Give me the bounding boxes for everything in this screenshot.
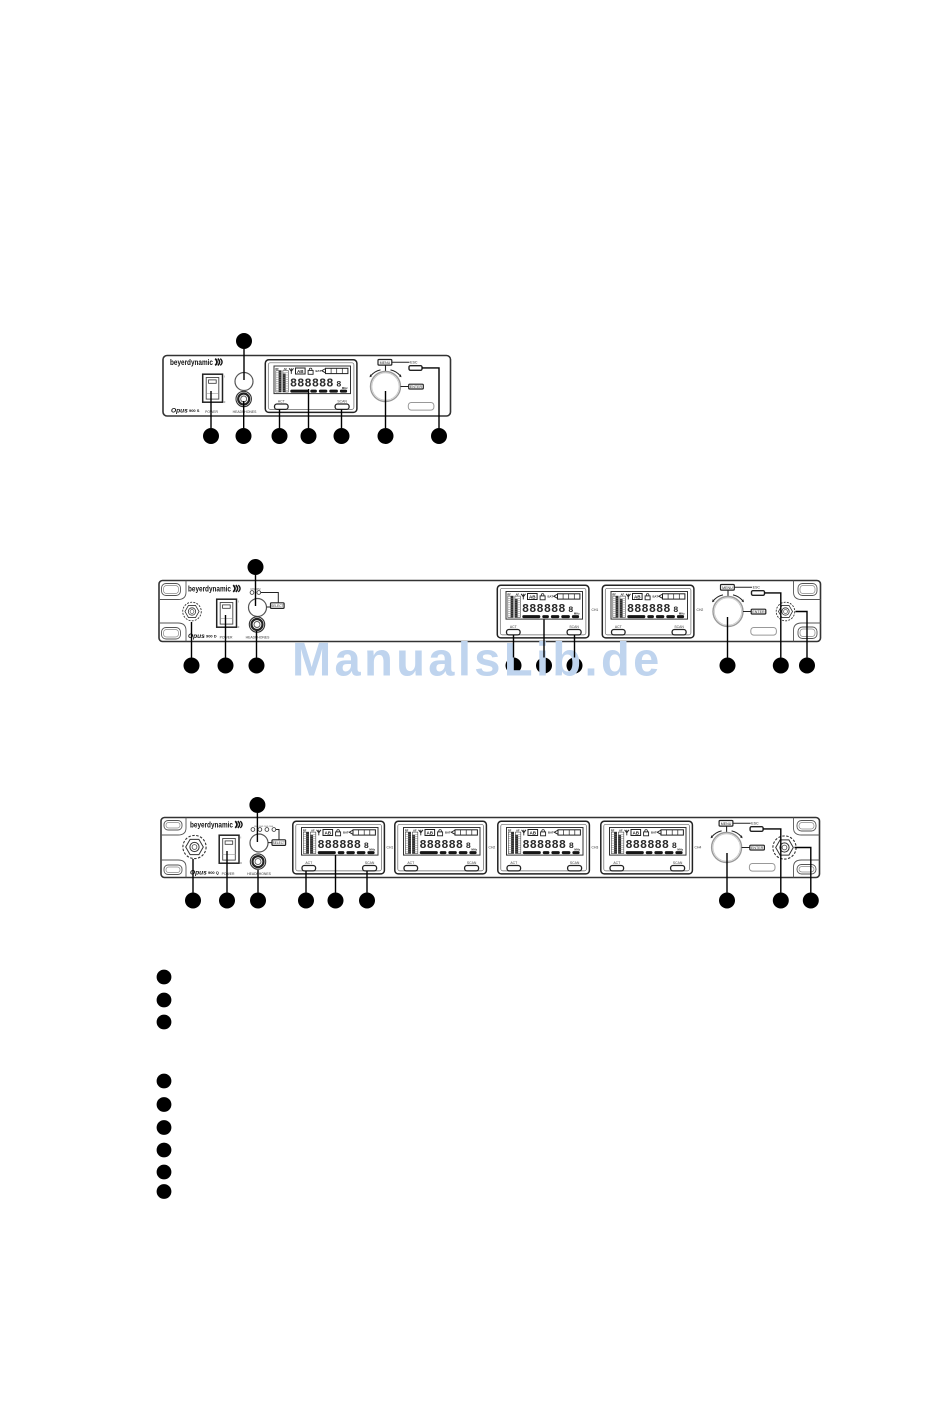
svg-text:HEADPHONES: HEADPHONES [233,410,257,414]
svg-text:CH2: CH2 [697,608,704,612]
svg-text:SELECT: SELECT [273,841,285,845]
svg-text:ManualsLib.de: ManualsLib.de [292,633,663,686]
svg-text:POWER: POWER [222,872,235,876]
svg-text:SELECT: SELECT [271,604,283,608]
svg-text:CH2: CH2 [489,846,496,850]
svg-text:HEADPHONES: HEADPHONES [247,872,271,876]
svg-text:CH1: CH1 [387,846,394,850]
svg-text:HEADPHONES: HEADPHONES [246,636,270,640]
svg-text:POWER: POWER [220,636,233,640]
svg-text:CH4: CH4 [695,846,702,850]
svg-text:CH3: CH3 [592,846,599,850]
svg-text:POWER: POWER [205,410,218,414]
svg-text:CH1: CH1 [592,608,599,612]
